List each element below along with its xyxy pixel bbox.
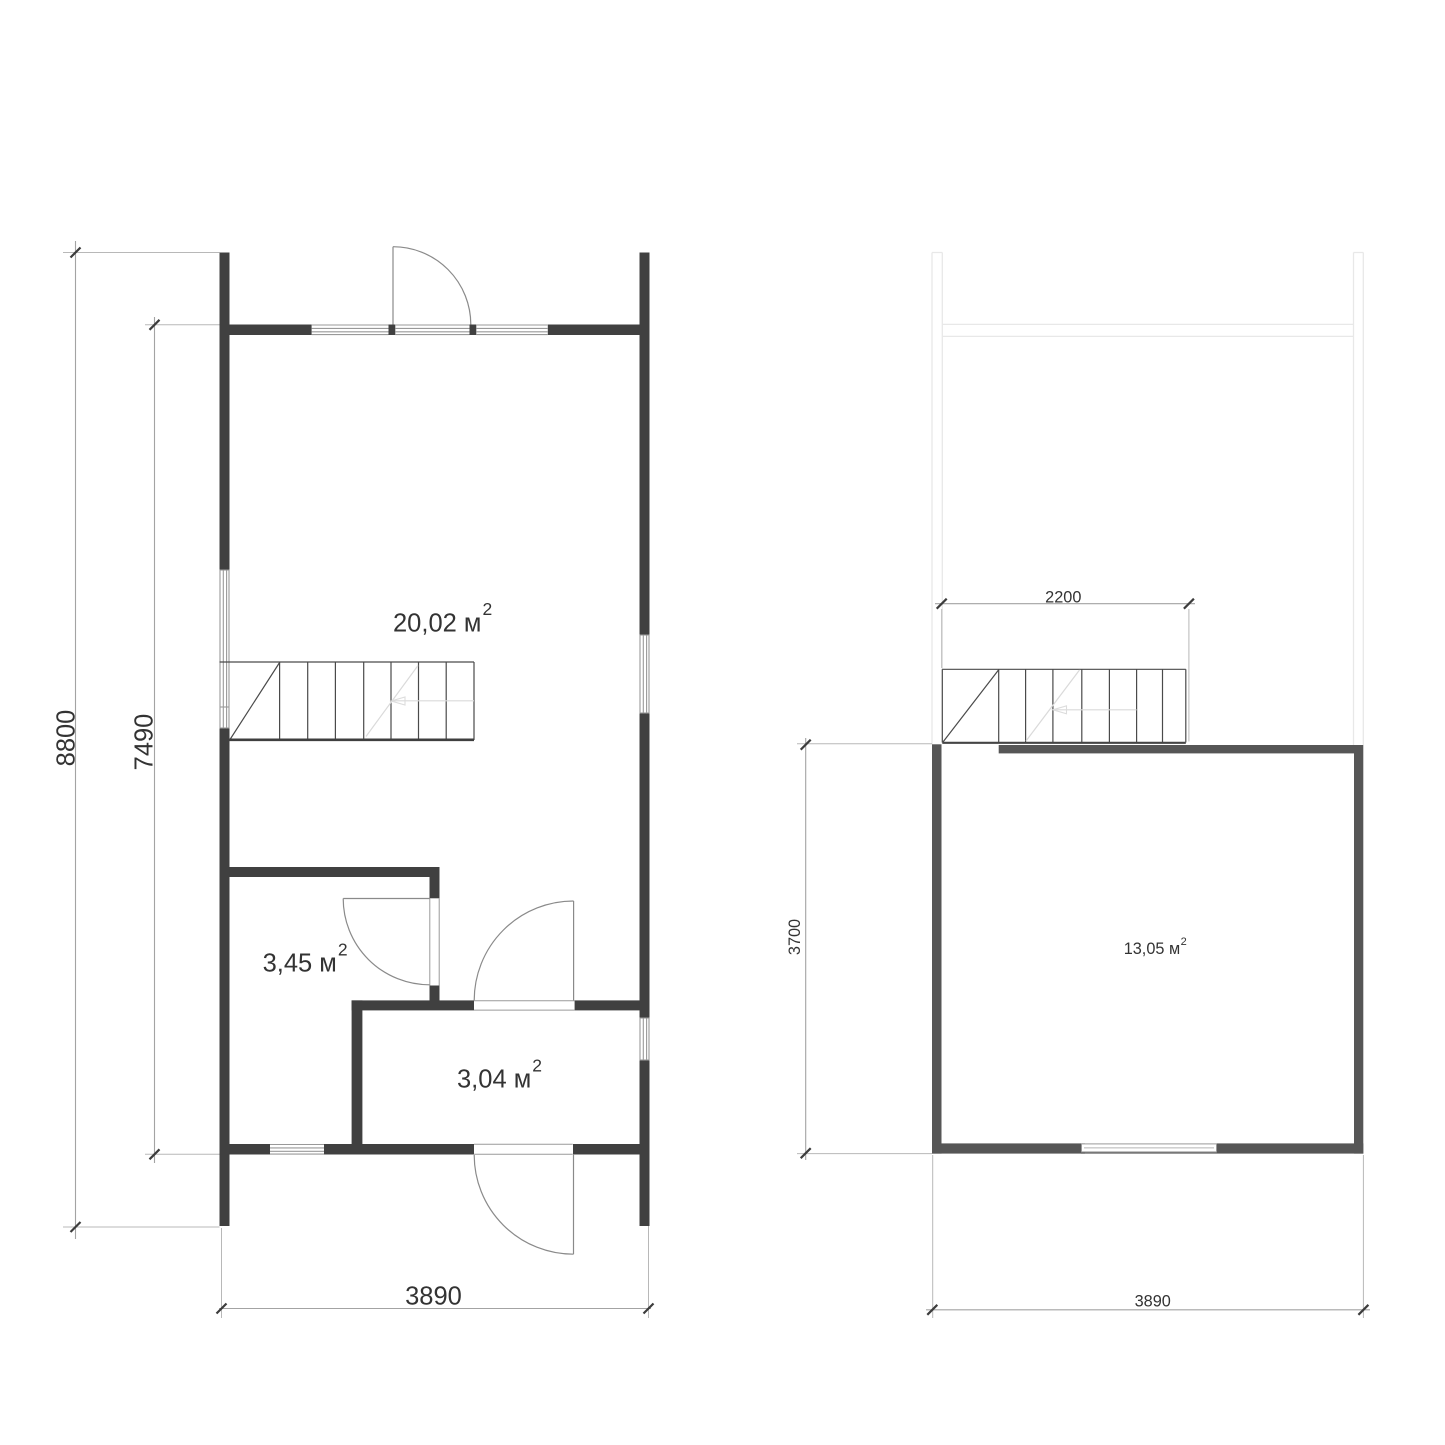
svg-text:3890: 3890: [1135, 1292, 1171, 1310]
svg-text:8800: 8800: [53, 710, 81, 767]
svg-text:13,05 м2: 13,05 м2: [1124, 936, 1187, 958]
svg-text:3700: 3700: [786, 919, 804, 955]
svg-text:2200: 2200: [1045, 588, 1081, 606]
svg-text:3890: 3890: [405, 1283, 462, 1311]
svg-text:7490: 7490: [131, 714, 159, 771]
